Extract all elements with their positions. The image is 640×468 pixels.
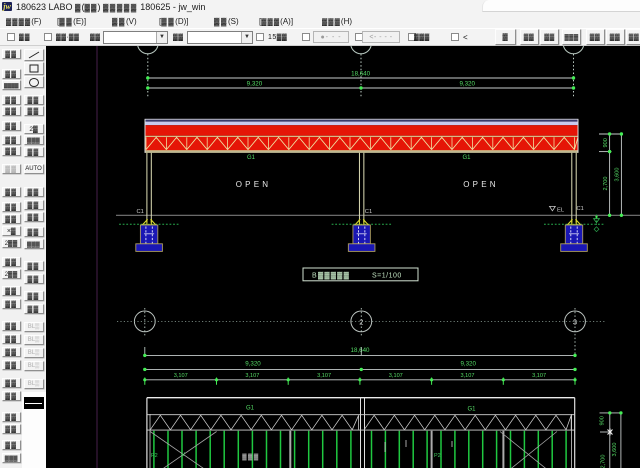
svg-text:C1: C1 <box>137 209 144 215</box>
svg-text:G1: G1 <box>467 407 476 413</box>
svg-text:2,700: 2,700 <box>603 177 609 191</box>
svg-text:P2: P2 <box>434 453 441 459</box>
svg-text:3,107: 3,107 <box>461 373 475 379</box>
svg-text:3,107: 3,107 <box>174 373 188 379</box>
svg-text:3,600: 3,600 <box>615 168 621 182</box>
svg-text:18,640: 18,640 <box>351 71 370 78</box>
svg-text:EL: EL <box>557 208 565 214</box>
svg-text:S=1/100: S=1/100 <box>372 273 402 280</box>
svg-text:3,107: 3,107 <box>245 373 259 379</box>
svg-text:OPEN: OPEN <box>463 180 498 189</box>
svg-text:B▓▓▓▓▓: B▓▓▓▓▓ <box>312 272 350 280</box>
svg-text:G1: G1 <box>462 155 471 161</box>
svg-text:C1: C1 <box>577 206 584 212</box>
svg-text:900: 900 <box>603 138 609 147</box>
svg-text:9,320: 9,320 <box>247 81 263 88</box>
svg-text:9,320: 9,320 <box>245 361 261 368</box>
svg-text:3,107: 3,107 <box>532 373 546 379</box>
svg-text:P2: P2 <box>151 453 158 459</box>
svg-text:2: 2 <box>359 318 363 327</box>
svg-text:3,600: 3,600 <box>612 443 618 457</box>
svg-text:9,320: 9,320 <box>460 361 476 368</box>
svg-text:3: 3 <box>573 318 577 327</box>
svg-text:V: V <box>182 452 186 458</box>
svg-text:9,320: 9,320 <box>459 81 475 88</box>
svg-text:3,107: 3,107 <box>317 373 331 379</box>
svg-text:▓▓▓: ▓▓▓ <box>242 454 260 461</box>
svg-text:G1: G1 <box>246 406 255 412</box>
svg-text:C1: C1 <box>365 209 372 215</box>
svg-text:OPEN: OPEN <box>236 180 271 189</box>
svg-text:900: 900 <box>599 416 605 425</box>
svg-text:3,107: 3,107 <box>389 373 403 379</box>
svg-text:18,640: 18,640 <box>351 347 370 354</box>
svg-text:G1: G1 <box>247 155 256 161</box>
svg-text:2,700: 2,700 <box>601 455 607 468</box>
